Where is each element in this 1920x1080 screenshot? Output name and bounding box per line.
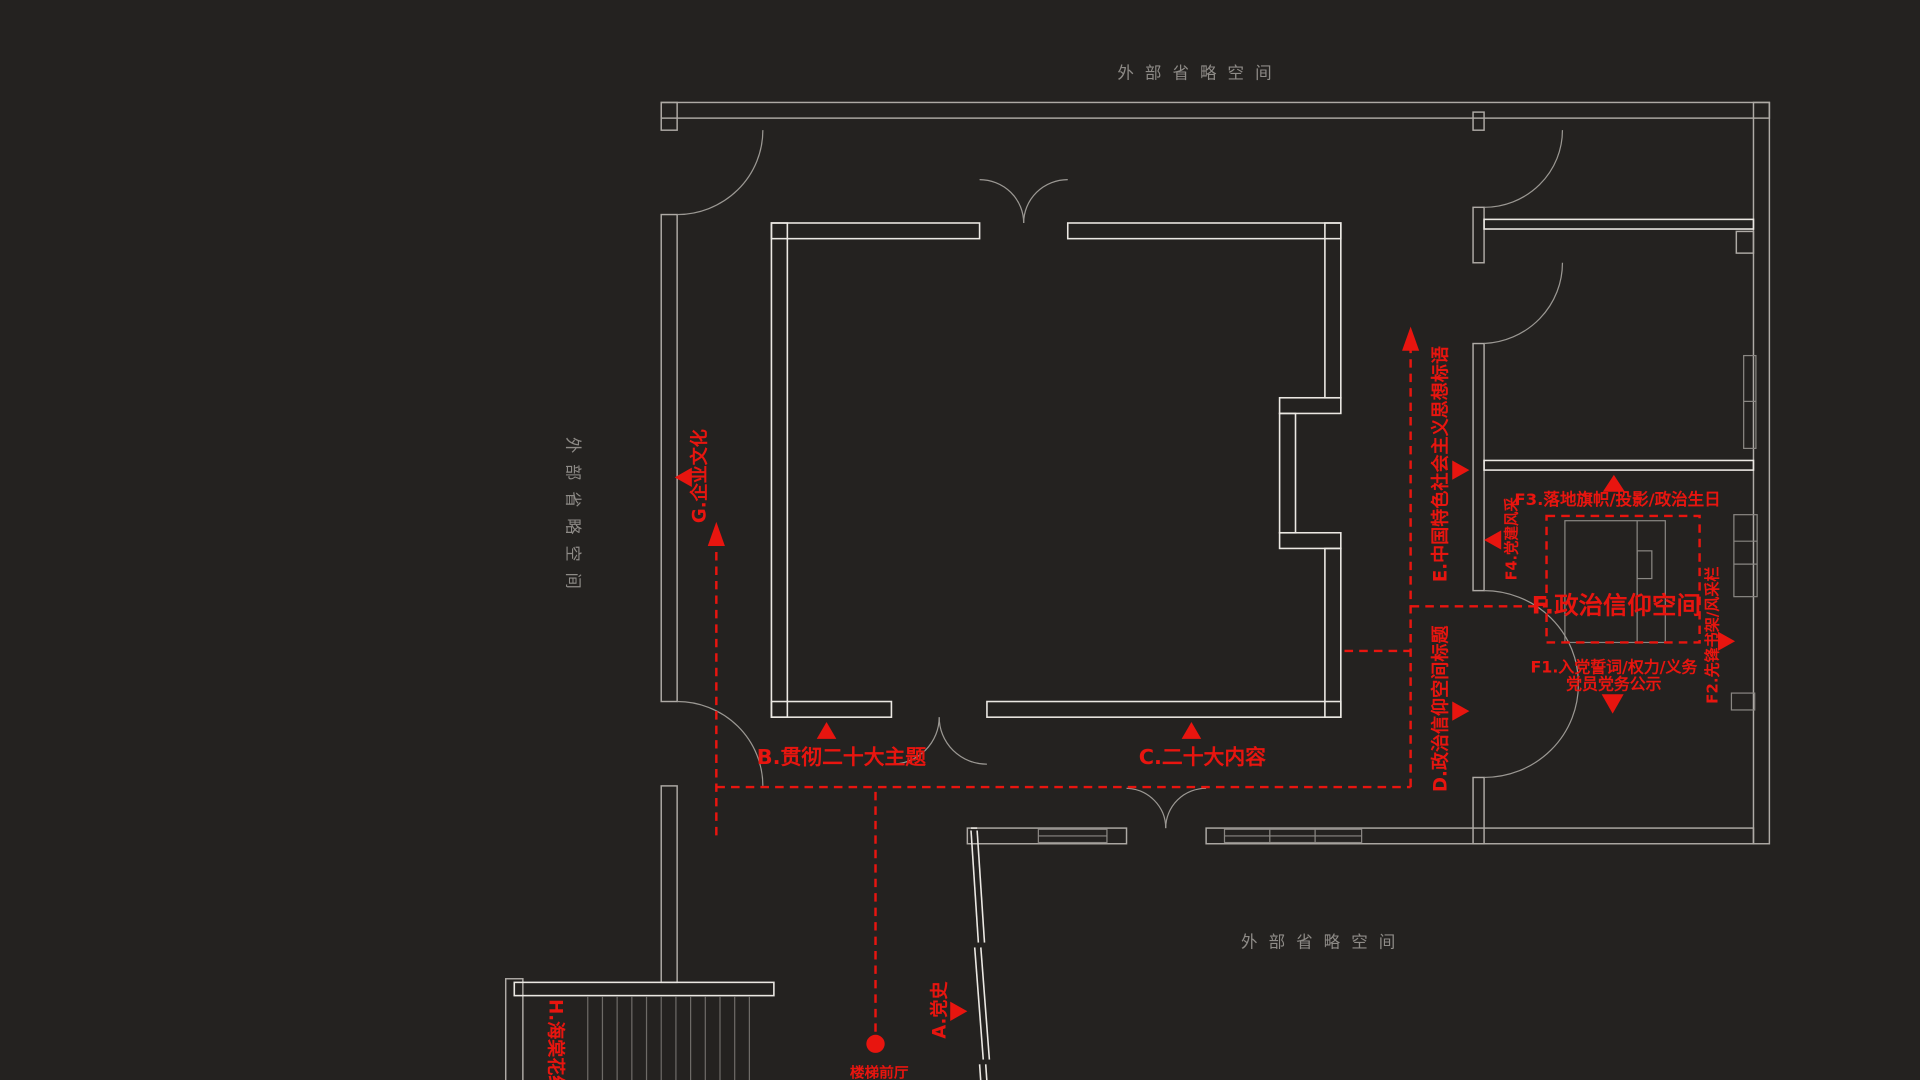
door-room2 xyxy=(1484,263,1562,344)
niche-top xyxy=(1280,398,1341,414)
door-entrance-leaf2 xyxy=(1166,788,1206,828)
marker-e-triangle xyxy=(1452,460,1469,479)
floor-plan: B.贯彻二十大主题 C.二十大内容 A.党史 D.政治信仰空间标题 E.中国特色… xyxy=(0,0,1920,1080)
label-e: E.中国特色社会主义思想标语 xyxy=(1429,346,1451,582)
marker-f1-triangle xyxy=(1602,694,1624,713)
inner-top-1 xyxy=(771,223,979,239)
label-exterior-top: 外部省略空间 xyxy=(1117,63,1282,82)
inner-right-1 xyxy=(1325,223,1341,398)
niche-left xyxy=(1280,413,1296,532)
wall-left-3 xyxy=(661,786,677,982)
door-room1 xyxy=(1484,130,1562,207)
divider-room2 xyxy=(1484,460,1753,470)
corridor-wall-4 xyxy=(1473,777,1484,843)
route-start-dot xyxy=(866,1035,884,1053)
inner-exhibition-room-walls xyxy=(771,223,1340,717)
route-arrow-e xyxy=(1402,327,1419,351)
niche-bottom xyxy=(1280,533,1341,549)
marker-d-triangle xyxy=(1452,702,1469,721)
label-f4: F4.党建风采 xyxy=(1502,497,1520,581)
marker-b-triangle xyxy=(817,722,837,739)
door-faith-leaf2 xyxy=(1484,683,1578,777)
label-c: C.二十大内容 xyxy=(1139,745,1267,769)
door-inner-top-leaf2 xyxy=(1024,180,1068,223)
faith-room-fixture xyxy=(1637,551,1652,579)
wall-right-notch xyxy=(1736,231,1753,253)
inner-left xyxy=(771,223,787,717)
inner-bottom-1 xyxy=(771,702,891,718)
wall-right xyxy=(1753,102,1769,843)
route-faith-zone xyxy=(1547,516,1700,643)
wall-top xyxy=(661,102,1769,118)
corridor-wall-1 xyxy=(1473,112,1484,130)
door-inner-bottom-leaf2 xyxy=(939,717,987,764)
label-exterior-bottom: 外部省略空间 xyxy=(1241,933,1406,952)
wall-left-1 xyxy=(661,102,677,130)
route-arrow-g xyxy=(708,522,725,546)
label-stair-lobby: 楼梯前厅 xyxy=(850,1064,909,1080)
marker-a-triangle xyxy=(950,1002,967,1021)
route-markers xyxy=(523,460,1735,1080)
door-inner-top-leaf1 xyxy=(980,180,1024,223)
wall-left-2 xyxy=(661,215,677,702)
door-left-upper xyxy=(677,130,763,214)
stair-treads xyxy=(588,997,750,1080)
label-a: A.党史 xyxy=(928,981,950,1039)
floor-plan-stage: B.贯彻二十大主题 C.二十大内容 A.党史 D.政治信仰空间标题 E.中国特色… xyxy=(0,0,1920,1080)
stair-cap-wall xyxy=(514,982,774,995)
label-b: B.贯彻二十大主题 xyxy=(757,745,927,769)
inner-top-2 xyxy=(1068,223,1341,239)
corridor-wall-3 xyxy=(1473,344,1484,591)
inner-bottom-2 xyxy=(987,702,1341,718)
corridor-wall-2 xyxy=(1473,207,1484,262)
label-h: H.海棠花红品牌内涵 xyxy=(545,999,567,1080)
marker-f4-triangle xyxy=(1484,530,1501,549)
label-f1-line2: 党员党务公示 xyxy=(1566,675,1662,694)
label-f2: F2.先锋书架/风采栏 xyxy=(1703,567,1721,704)
windows xyxy=(1038,829,1361,842)
label-d: D.政治信仰空间标题 xyxy=(1429,625,1451,792)
inner-right-2 xyxy=(1325,548,1341,717)
outer-walls xyxy=(661,102,1769,982)
circulation-route xyxy=(708,327,1700,1053)
door-left-lower xyxy=(677,702,763,786)
label-exterior-left: 外部省略空间 xyxy=(563,437,582,600)
label-g: G.企业文化 xyxy=(688,429,710,523)
faith-room-outline xyxy=(1565,521,1665,643)
faith-room xyxy=(1565,521,1665,643)
curtain-wall xyxy=(971,828,994,1080)
label-f: F.政治信仰空间 xyxy=(1532,591,1701,620)
marker-c-triangle xyxy=(1182,722,1202,739)
door-entrance-leaf1 xyxy=(1127,788,1166,828)
staircase xyxy=(506,979,992,1080)
divider-room1 xyxy=(1484,219,1753,229)
label-f3: F3.落地旗帜/投影/政治生日 xyxy=(1514,490,1720,509)
